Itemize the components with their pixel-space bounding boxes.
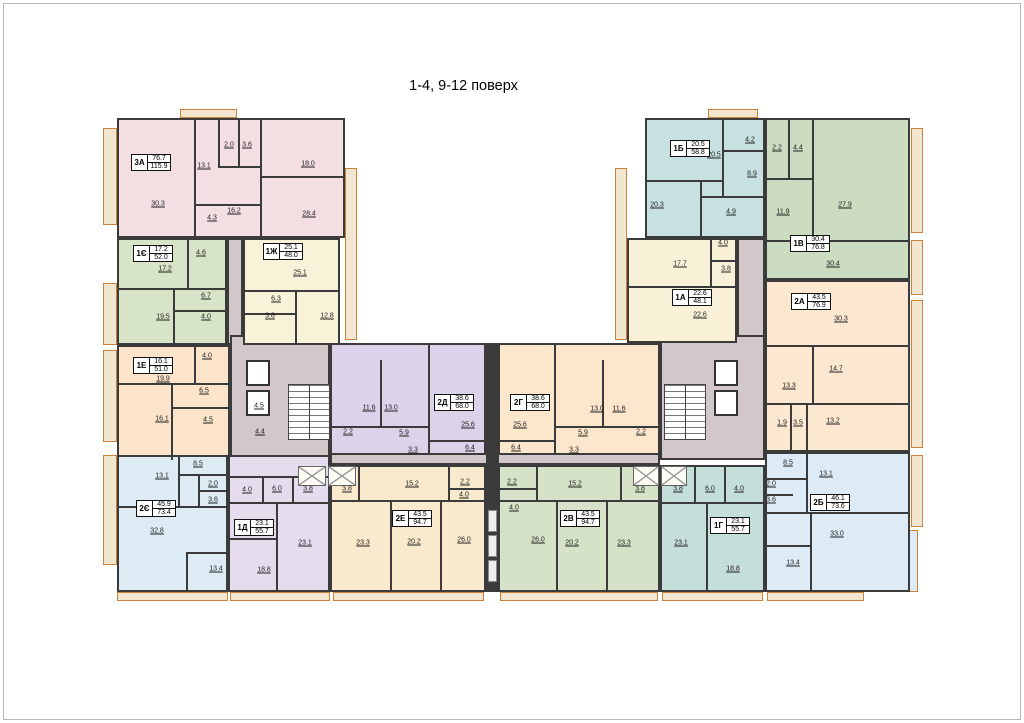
interior-wall — [806, 452, 808, 512]
room-area-label: 28.4 — [302, 211, 316, 218]
interior-wall — [173, 288, 175, 345]
apartment-living-area: 25.1 — [280, 244, 302, 252]
room-area-label: 8.5 — [783, 460, 793, 467]
interior-wall — [448, 488, 486, 490]
room-area-label: 13.0 — [590, 406, 604, 413]
apartment-living-area: 20.5 — [687, 141, 709, 149]
room-area-label: 6.7 — [201, 293, 211, 300]
interior-wall — [171, 383, 173, 460]
interior-wall — [358, 465, 360, 500]
room-area-label: 13.1 — [819, 471, 833, 478]
interior-wall — [194, 345, 196, 383]
room-area-label: 3.5 — [793, 420, 803, 427]
interior-wall — [498, 488, 536, 490]
room-area-label: 4.0 — [459, 492, 469, 499]
corridor — [227, 238, 243, 345]
staircase — [288, 384, 330, 440]
apartment-info-box: 2В43.594.7 — [560, 510, 600, 527]
interior-wall — [276, 502, 278, 592]
apartment-living-area: 38.6 — [451, 395, 473, 403]
room-area-label: 6.4 — [511, 445, 521, 452]
room-area-label: 3.8 — [342, 486, 352, 493]
room-area-label: 27.9 — [838, 202, 852, 209]
apartment-info-box: 1В30.476.8 — [790, 235, 830, 252]
room-area-label: 19.5 — [156, 314, 170, 321]
room-area-label: 2.0 — [208, 481, 218, 488]
apartment-living-area: 38.6 — [527, 395, 549, 403]
interior-wall — [620, 465, 622, 500]
room-area-label: 1.9 — [777, 420, 787, 427]
apartment-code: 2Е — [393, 511, 409, 526]
balcony — [345, 168, 357, 340]
balcony — [767, 592, 864, 601]
room-area-label: 17.2 — [158, 266, 172, 273]
room-area-label: 23.1 — [298, 540, 312, 547]
balcony — [103, 350, 117, 442]
apartment-total-area: 48.0 — [280, 252, 302, 259]
room-area-label: 20.2 — [407, 539, 421, 546]
interior-wall — [627, 286, 737, 288]
room-area-label: 4.0 — [509, 505, 519, 512]
interior-wall — [428, 343, 430, 455]
apartment-code: 2Б — [811, 495, 827, 510]
elevator-cab — [488, 535, 497, 557]
room-area-label: 6.0 — [705, 486, 715, 493]
room-area-label: 3.3 — [408, 447, 418, 454]
apartment-total-area: 115.9 — [148, 163, 170, 170]
loggia-x — [328, 466, 356, 486]
room-area-label: 26.0 — [531, 537, 545, 544]
room-area-label: 3.8 — [303, 486, 313, 493]
apartment-info-box: 2Д38.668.0 — [434, 394, 474, 411]
interior-wall — [117, 383, 230, 385]
interior-wall — [428, 440, 486, 442]
interior-wall — [194, 204, 260, 206]
interior-wall — [722, 118, 724, 196]
room-area-label: 25.6 — [513, 422, 527, 429]
room-area-label: 14.7 — [829, 366, 843, 373]
apartment-living-area: 23.1 — [727, 518, 749, 526]
room-area-label: 18.0 — [301, 161, 315, 168]
balcony — [103, 283, 117, 345]
apartment-total-area: 68.0 — [527, 403, 549, 410]
interior-wall — [765, 403, 910, 405]
apartment-total-area: 94.7 — [577, 519, 599, 526]
interior-wall — [186, 552, 188, 592]
interior-wall — [292, 476, 294, 502]
room-area-label: 23.1 — [674, 540, 688, 547]
apartment-code: 1Д — [235, 520, 251, 535]
apartment-total-area: 73.6 — [827, 503, 849, 510]
staircase — [664, 384, 706, 440]
interior-wall — [498, 500, 660, 502]
apartment-living-area: 43.5 — [808, 294, 830, 302]
room-area-label: 11.9 — [776, 209, 789, 216]
interior-wall — [228, 538, 276, 540]
interior-wall — [178, 455, 180, 506]
room-area-label: 2.0 — [766, 481, 776, 488]
room-area-label: 18.8 — [726, 566, 740, 573]
interior-wall — [262, 476, 264, 502]
apartment-info-box: 2Є45.973.4 — [136, 500, 176, 517]
room-area-label: 16.1 — [155, 416, 169, 423]
loggia-x — [298, 466, 326, 486]
room-area-label: 23.3 — [356, 540, 370, 547]
room-area-label: 2.2 — [636, 429, 646, 436]
interior-wall — [260, 118, 262, 238]
balcony — [662, 592, 763, 601]
interior-wall — [556, 500, 558, 592]
interior-wall — [788, 118, 790, 178]
apartment-info-box: 1Д23.155.7 — [234, 519, 274, 536]
interior-wall — [178, 474, 228, 476]
room-area-label: 5.9 — [399, 430, 409, 437]
room-area-label: 23.3 — [617, 540, 631, 547]
balcony — [911, 240, 923, 295]
room-area-label: 2.2 — [507, 479, 517, 486]
balcony — [103, 128, 117, 225]
interior-wall — [186, 552, 228, 554]
room-area-label: 4.5 — [203, 417, 213, 424]
apartment-code: 2А — [792, 294, 808, 309]
interior-wall — [194, 118, 196, 238]
room-area-label: 2.2 — [772, 145, 782, 152]
interior-wall — [187, 238, 189, 288]
room-area-label: 3.3 — [569, 447, 579, 454]
interior-wall — [765, 178, 812, 180]
apartment-2b — [765, 452, 910, 592]
interior-wall — [243, 290, 340, 292]
interior-wall — [554, 343, 556, 455]
room-area-label: 20.3 — [650, 202, 664, 209]
room-area-label: 13.4 — [786, 560, 800, 567]
apartment-total-area: 94.7 — [409, 519, 431, 526]
corridor-area-label: 4.5 — [254, 403, 264, 410]
interior-wall — [228, 502, 330, 504]
room-area-label: 25.6 — [461, 422, 475, 429]
room-area-label: 2.2 — [460, 479, 470, 486]
interior-wall — [706, 502, 708, 592]
apartment-living-area: 16.1 — [150, 358, 172, 366]
interior-wall — [440, 500, 442, 592]
interior-wall — [812, 345, 814, 405]
room-area-label: 20.2 — [565, 540, 579, 547]
balcony — [708, 109, 758, 118]
interior-wall — [765, 512, 910, 514]
room-area-label: 13.2 — [826, 418, 840, 425]
room-area-label: 4.6 — [196, 250, 206, 257]
interior-wall — [173, 310, 227, 312]
interior-wall — [238, 118, 240, 168]
room-area-label: 4.2 — [745, 137, 755, 144]
apartment-1v — [765, 118, 910, 280]
room-area-label: 3.6 — [242, 142, 252, 149]
room-area-label: 15.2 — [405, 481, 419, 488]
room-area-label: 33.0 — [830, 531, 844, 538]
apartment-info-box: 2Г38.668.0 — [510, 394, 550, 411]
room-area-label: 5.9 — [578, 430, 588, 437]
balcony — [911, 455, 923, 527]
room-area-label: 17.7 — [673, 261, 687, 268]
apartment-code: 2Д — [435, 395, 451, 410]
apartment-living-area: 17.2 — [150, 246, 172, 254]
interior-wall — [606, 500, 608, 592]
interior-wall — [765, 345, 910, 347]
interior-wall — [722, 150, 765, 152]
interior-wall — [710, 260, 737, 262]
interior-wall — [790, 403, 792, 452]
apartment-code: 3А — [132, 155, 148, 170]
apartment-total-area: 55.7 — [727, 526, 749, 533]
interior-wall — [260, 176, 345, 178]
apartment-living-area: 45.9 — [153, 501, 175, 509]
room-area-label: 4.0 — [201, 314, 211, 321]
room-area-label: 4.0 — [202, 353, 212, 360]
interior-wall — [498, 440, 556, 442]
apartment-info-box: 1Е16.151.0 — [133, 357, 173, 374]
apartment-code: 1А — [673, 290, 689, 305]
interior-wall — [536, 465, 538, 500]
loggia-x — [661, 466, 687, 486]
balcony — [333, 592, 484, 601]
balcony — [230, 592, 330, 601]
room-area-label: 30.3 — [834, 316, 848, 323]
room-area-label: 12.8 — [320, 313, 334, 320]
interior-wall — [806, 403, 808, 452]
room-area-label: 13.1 — [155, 473, 169, 480]
apartment-info-box: 2А43.576.9 — [791, 293, 831, 310]
interior-wall — [710, 238, 712, 286]
room-area-label: 2.0 — [224, 142, 234, 149]
balcony — [615, 168, 627, 340]
apartment-living-area: 22.6 — [689, 290, 711, 298]
loggia-x — [633, 466, 659, 486]
elevator-shaft — [246, 360, 270, 386]
apartment-info-box: 1Є17.252.0 — [133, 245, 173, 262]
balcony — [911, 128, 923, 233]
apartment-living-area: 30.4 — [807, 236, 829, 244]
plan-title: 1-4, 9-12 поверх — [0, 78, 927, 94]
apartment-total-area: 76.8 — [807, 244, 829, 251]
apartment-living-area: 76.7 — [148, 155, 170, 163]
apartment-info-box: 1Г23.155.7 — [710, 517, 750, 534]
interior-wall — [602, 360, 604, 426]
apartment-info-box: 2Е43.594.7 — [392, 510, 432, 527]
room-area-label: 2.2 — [343, 429, 353, 436]
room-area-label: 15.2 — [568, 481, 582, 488]
apartment-total-area: 48.1 — [689, 298, 711, 305]
room-area-label: 30.3 — [151, 201, 165, 208]
apartment-code: 1Є — [134, 246, 150, 261]
room-area-label: 3.8 — [635, 486, 645, 493]
apartment-3a — [117, 118, 345, 238]
room-area-label: 13.0 — [384, 405, 398, 412]
room-area-label: 8.9 — [747, 171, 757, 178]
room-area-label: 25.1 — [293, 270, 307, 277]
interior-wall — [117, 288, 227, 290]
apartment-total-area: 73.4 — [153, 509, 175, 516]
room-area-label: 4.3 — [207, 215, 217, 222]
apartment-total-area: 52.0 — [150, 254, 172, 261]
balcony — [180, 109, 237, 118]
elevator-cab — [488, 510, 497, 532]
interior-wall — [810, 512, 812, 592]
apartment-code: 1Е — [134, 358, 150, 373]
interior-wall — [645, 180, 724, 182]
room-area-label: 8.5 — [193, 461, 203, 468]
apartment-code: 2Є — [137, 501, 153, 516]
interior-wall — [448, 465, 450, 500]
room-area-label: 6.4 — [465, 445, 475, 452]
apartment-code: 1Ж — [264, 244, 280, 259]
room-area-label: 3.6 — [766, 497, 776, 504]
apartment-total-area: 68.0 — [451, 403, 473, 410]
interior-wall — [171, 407, 230, 409]
room-area-label: 13.4 — [209, 566, 223, 573]
room-area-label: 30.4 — [826, 261, 840, 268]
room-area-label: 4.9 — [726, 209, 736, 216]
room-area-label: 11.6 — [362, 405, 375, 412]
room-area-label: 4.0 — [718, 240, 728, 247]
corridor-area-label: 4.4 — [255, 429, 265, 436]
corridor — [737, 238, 765, 345]
interior-wall — [198, 490, 228, 492]
room-area-label: 4.4 — [793, 145, 803, 152]
room-area-label: 13.3 — [782, 383, 796, 390]
room-area-label: 16.2 — [227, 208, 241, 215]
apartment-living-area: 43.5 — [409, 511, 431, 519]
apartment-total-area: 55.7 — [251, 528, 273, 535]
room-area-label: 6.0 — [272, 486, 282, 493]
elevator-shaft — [714, 360, 738, 386]
apartment-code: 2В — [561, 511, 577, 526]
apartment-info-box: 1Б20.558.8 — [670, 140, 710, 157]
apartment-code: 1В — [791, 236, 807, 251]
interior-wall — [765, 240, 910, 242]
apartment-info-box: 1А22.648.1 — [672, 289, 712, 306]
apartment-code: 1Г — [711, 518, 727, 533]
balcony — [500, 592, 658, 601]
apartment-info-box: 2Б46.173.6 — [810, 494, 850, 511]
apartment-info-box: 1Ж25.148.0 — [263, 243, 303, 260]
room-area-label: 13.1 — [197, 163, 211, 170]
balcony — [911, 300, 923, 448]
floor-plan: 4.54.413.12.03.618.016.24.330.328.43А76.… — [0, 0, 1024, 723]
room-area-label: 19.9 — [156, 376, 170, 383]
interior-wall — [812, 118, 814, 240]
interior-wall — [660, 502, 765, 504]
apartment-code: 2Г — [511, 395, 527, 410]
interior-wall — [330, 500, 486, 502]
room-area-label: 6.3 — [271, 296, 281, 303]
interior-wall — [218, 118, 220, 168]
room-area-label: 32.8 — [150, 528, 164, 535]
room-area-label: 6.5 — [199, 388, 209, 395]
apartment-total-area: 58.8 — [687, 149, 709, 156]
elevator-shaft — [714, 390, 738, 416]
interior-wall — [765, 545, 810, 547]
apartment-living-area: 46.1 — [827, 495, 849, 503]
interior-wall — [218, 166, 260, 168]
room-area-label: 18.8 — [257, 567, 271, 574]
interior-wall — [694, 465, 696, 502]
room-area-label: 26.0 — [457, 537, 471, 544]
room-area-label: 3.8 — [265, 313, 275, 320]
balcony — [117, 592, 228, 601]
apartment-code: 1Б — [671, 141, 687, 156]
apartment-info-box: 3А76.7115.9 — [131, 154, 171, 171]
balcony — [103, 455, 117, 565]
interior-wall — [700, 180, 702, 238]
elevator-cab — [488, 560, 497, 582]
apartment-living-area: 43.5 — [577, 511, 599, 519]
room-area-label: 3.6 — [208, 497, 218, 504]
room-area-label: 4.0 — [242, 487, 252, 494]
interior-wall — [700, 196, 765, 198]
interior-wall — [724, 465, 726, 502]
apartment-total-area: 51.0 — [150, 366, 172, 373]
interior-wall — [198, 474, 200, 506]
interior-wall — [295, 290, 297, 345]
apartment-total-area: 76.9 — [808, 302, 830, 309]
room-area-label: 3.8 — [673, 486, 683, 493]
room-area-label: 4.0 — [734, 486, 744, 493]
interior-wall — [380, 360, 382, 426]
apartment-living-area: 23.1 — [251, 520, 273, 528]
room-area-label: 22.6 — [693, 312, 707, 319]
room-area-label: 3.8 — [721, 266, 731, 273]
room-area-label: 11.6 — [612, 406, 625, 413]
